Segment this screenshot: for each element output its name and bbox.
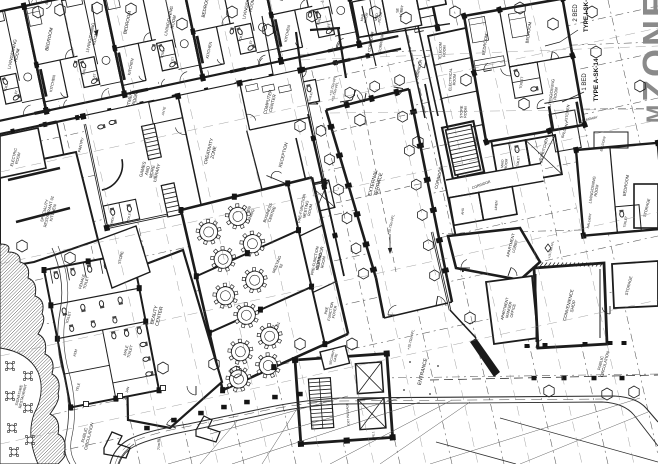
- svg-text:M: M: [642, 105, 658, 123]
- svg-text:2 BED: 2 BED: [573, 4, 579, 22]
- svg-text:PE.1: PE.1: [371, 431, 375, 438]
- svg-text:LINEN: LINEN: [494, 200, 499, 211]
- svg-text:TOILET: TOILET: [516, 156, 521, 167]
- svg-text:STOREROOM: STOREROOM: [459, 105, 467, 118]
- svg-text:MED.ROOM: MED.ROOM: [374, 11, 383, 23]
- svg-text:AHU: AHU: [460, 207, 465, 215]
- svg-text:1 BED: 1 BED: [582, 73, 588, 91]
- svg-text:TYPE A-SK-14: TYPE A-SK-14: [593, 58, 600, 102]
- svg-text:ZONE: ZONE: [635, 0, 658, 102]
- svg-text:MAIDROOM: MAIDROOM: [500, 158, 509, 169]
